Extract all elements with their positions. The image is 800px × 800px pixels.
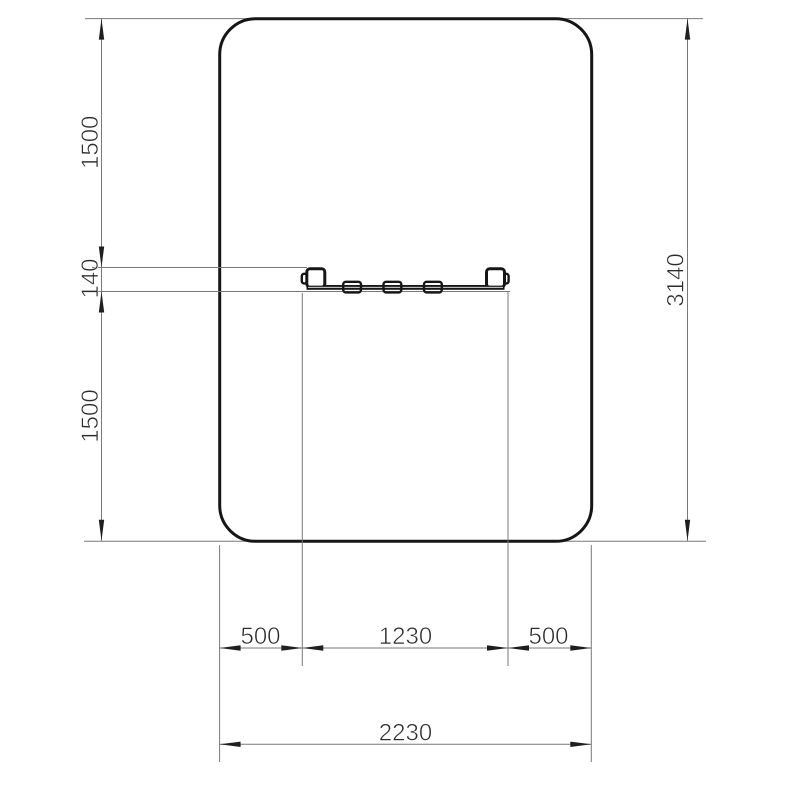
svg-text:500: 500 bbox=[528, 623, 568, 650]
svg-text:1500: 1500 bbox=[77, 389, 104, 442]
svg-text:500: 500 bbox=[240, 623, 280, 650]
svg-text:2230: 2230 bbox=[379, 719, 432, 746]
svg-text:1230: 1230 bbox=[379, 623, 432, 650]
svg-text:3140: 3140 bbox=[663, 253, 690, 306]
svg-text:140: 140 bbox=[77, 258, 104, 298]
svg-text:1500: 1500 bbox=[77, 116, 104, 169]
